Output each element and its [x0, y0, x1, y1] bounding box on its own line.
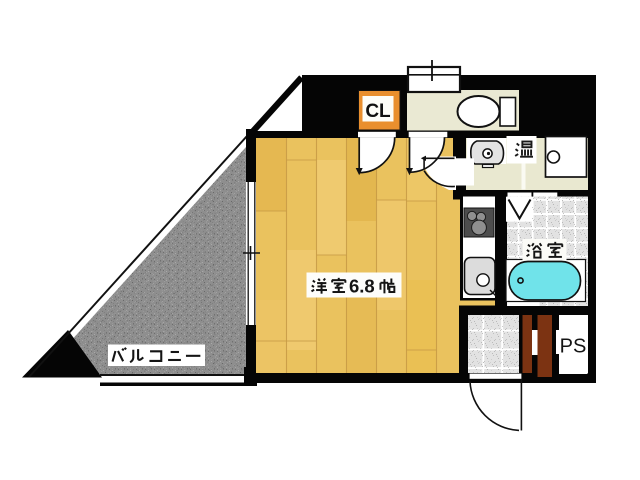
svg-text:PS: PS — [560, 336, 587, 358]
svg-text:CL: CL — [365, 101, 391, 122]
svg-text:6.8: 6.8 — [349, 276, 375, 297]
